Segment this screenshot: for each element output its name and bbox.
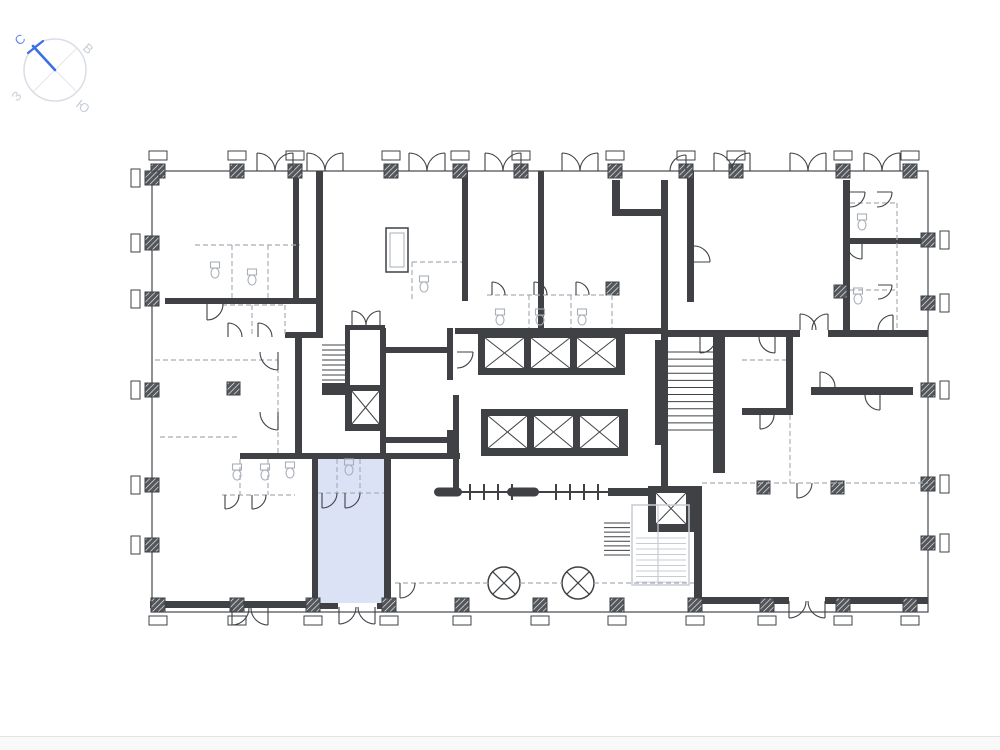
door-arc [366,311,380,325]
perimeter-column [921,296,935,310]
toilet-icon [854,288,863,294]
column-bracket [131,169,140,187]
highlighted-room[interactable] [318,459,384,603]
column-bracket [901,151,919,160]
column-bracket [940,294,949,312]
wall-segment [386,347,452,353]
column-bracket [727,151,745,160]
column-bracket [131,290,140,308]
door-arc [307,153,325,171]
interior-column [834,285,847,298]
wall-segment [384,453,391,607]
column-bracket [149,616,167,625]
perimeter-column [306,598,320,612]
door-arc [492,282,505,295]
wall-segment [786,337,793,415]
toilet-icon [248,269,257,275]
door-arc [260,412,278,430]
door-arc [207,304,223,320]
perimeter-column [921,383,935,397]
perimeter-column [836,164,850,178]
wall-segment [386,437,447,443]
wall-segment [453,395,459,495]
page-footer-divider [0,736,1000,750]
door-arc [228,323,242,337]
door-arc [808,153,826,171]
perimeter-column [382,598,396,612]
outline [386,228,408,272]
turnstile-pill [507,488,539,497]
door-arc [790,153,808,171]
perimeter-column [688,598,702,612]
column-bracket [131,476,140,494]
perimeter-column [288,164,302,178]
wall-segment [687,171,694,302]
column-bracket [131,536,140,554]
door-arc [260,352,278,370]
column-bracket [606,151,624,160]
column-bracket [834,616,852,625]
door-arc [251,608,268,625]
perimeter-column [921,233,935,247]
column-bracket [531,616,549,625]
wall-segment [462,171,468,301]
column-bracket [304,616,322,625]
wall-segment [612,209,668,216]
wall-segment [312,459,318,607]
toilet-icon [578,315,586,325]
door-arc [812,314,828,330]
perimeter-column [455,598,469,612]
wall-segment [828,330,928,337]
perimeter-column [145,383,159,397]
wall-segment [742,408,793,415]
toilet-icon [211,268,219,278]
door-arc [865,395,880,410]
perimeter-column [903,598,917,612]
perimeter-column [145,292,159,306]
column-bracket [131,381,140,399]
perimeter-column [230,164,244,178]
wall-segment [538,171,544,331]
toilet-icon [211,262,220,268]
toilet-icon [496,309,505,315]
door-arc [409,153,427,171]
perimeter-column [145,478,159,492]
door-arc [877,192,892,207]
perimeter-column [608,164,622,178]
door-arc [878,315,893,330]
door-arc [562,153,580,171]
door-arc [580,153,598,171]
perimeter-column [760,598,774,612]
turnstile-pill [434,488,462,497]
door-arc [576,282,589,295]
door-arc [252,495,266,509]
wall-segment [850,238,928,244]
page: С В З Ю [0,0,1000,750]
wall-segment [663,330,800,337]
interior-column [606,282,619,295]
wall-segment [350,330,380,385]
toilet-icon [858,220,866,230]
column-bracket [228,151,246,160]
column-bracket [758,616,776,625]
toilet-icon [578,309,587,315]
door-arc [850,192,865,207]
wall-segment [843,180,850,336]
perimeter-column [453,164,467,178]
wall-segment [165,298,322,304]
door-arc [339,607,356,624]
wall-segment [713,337,725,473]
column-bracket [382,151,400,160]
column-bracket [901,616,919,625]
perimeter-column [151,598,165,612]
interior-column [227,382,240,395]
perimeter-column [533,598,547,612]
door-arc [878,285,892,299]
perimeter-column [921,477,935,491]
toilet-icon [248,275,256,285]
column-bracket [834,151,852,160]
toilet-icon [496,315,504,325]
toilet-icon [854,294,862,304]
door-arc [257,153,275,171]
door-arc [225,495,239,509]
wall-segment [447,430,453,457]
wall-segment [694,486,702,602]
perimeter-column [145,538,159,552]
door-arc [457,352,473,368]
wall-segment [295,334,302,457]
wall-segment [811,387,913,395]
toilet-icon [420,276,429,282]
door-arc [864,153,882,171]
perimeter-column [145,171,159,185]
door-arc [352,311,366,325]
column-bracket [286,151,304,160]
toilet-icon [420,282,428,292]
perimeter-column [384,164,398,178]
column-bracket [686,616,704,625]
wall-segment [316,171,323,334]
door-arc [400,583,415,598]
outline [390,233,404,267]
wall-segment [655,340,661,445]
door-arc [325,153,343,171]
perimeter-column [836,598,850,612]
toilet-icon [286,462,295,468]
column-bracket [608,616,626,625]
wall-segment [447,328,453,380]
column-bracket [149,151,167,160]
column-bracket [453,616,471,625]
column-bracket [940,231,949,249]
door-arc [820,372,835,387]
column-bracket [940,381,949,399]
wall-segment [285,332,323,338]
door-arc [427,153,445,171]
door-arc [258,323,272,337]
wall-segment [695,597,789,604]
door-arc [808,601,825,618]
floor-plan [0,0,1000,750]
perimeter-column [610,598,624,612]
door-arc [760,415,774,429]
perimeter-column [903,164,917,178]
column-bracket [380,616,398,625]
door-arc [485,153,503,171]
column-bracket [131,234,140,252]
toilet-icon [858,214,867,220]
column-bracket [940,534,949,552]
door-arc [882,153,900,171]
door-arc [797,483,812,498]
toilet-icon [286,468,294,478]
perimeter-column [145,236,159,250]
wall-segment [240,453,460,459]
perimeter-column [921,536,935,550]
door-arc [694,246,710,262]
wall-segment [293,171,299,301]
column-bracket [451,151,469,160]
column-bracket [940,475,949,493]
door-arc [759,337,775,353]
door-arc [789,601,806,618]
door-arc [358,607,375,624]
